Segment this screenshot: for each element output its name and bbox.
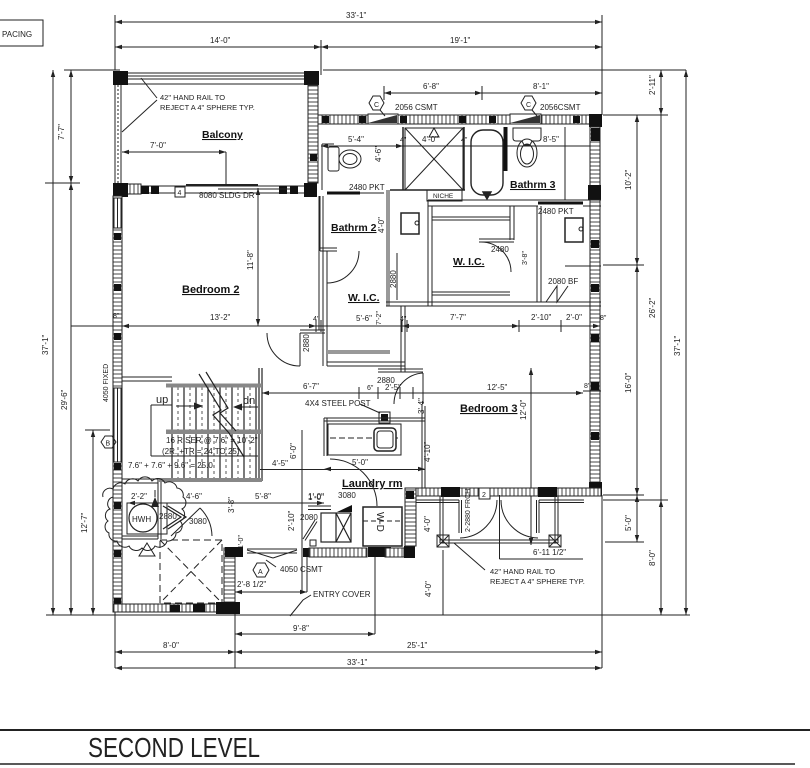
svg-text:SECOND LEVEL: SECOND LEVEL	[88, 732, 260, 763]
svg-text:8'-5": 8'-5"	[543, 135, 559, 144]
svg-text:8": 8"	[113, 313, 120, 320]
svg-text:8080 SLDG DR: 8080 SLDG DR	[199, 191, 255, 200]
svg-text:4: 4	[178, 190, 182, 197]
svg-text:33'-1": 33'-1"	[347, 658, 368, 667]
svg-text:4'-10": 4'-10"	[423, 441, 432, 462]
svg-text:37'-1": 37'-1"	[41, 334, 50, 355]
svg-text:8'-0": 8'-0"	[163, 641, 179, 650]
svg-text:Bedroom 3: Bedroom 3	[460, 403, 517, 415]
svg-text:Bedroom 2: Bedroom 2	[182, 284, 239, 296]
svg-text:7'-0": 7'-0"	[150, 141, 166, 150]
svg-text:Balcony: Balcony	[202, 129, 243, 141]
svg-text:8'-1": 8'-1"	[533, 82, 549, 91]
svg-text:8": 8"	[600, 315, 607, 322]
svg-text:2'-2": 2'-2"	[131, 492, 147, 501]
svg-text:6'-7": 6'-7"	[303, 382, 319, 391]
svg-text:5'-6": 5'-6"	[356, 314, 372, 323]
svg-text:8": 8"	[584, 383, 591, 390]
svg-text:4'-0": 4'-0"	[424, 581, 433, 597]
svg-text:5'-0": 5'-0"	[624, 515, 633, 531]
svg-text:PACING: PACING	[2, 30, 32, 39]
svg-text:3080: 3080	[338, 491, 356, 500]
svg-text:HWH: HWH	[132, 515, 151, 524]
svg-text:4050 CSMT: 4050 CSMT	[280, 565, 323, 574]
svg-text:A: A	[258, 569, 263, 576]
svg-text:C: C	[526, 102, 531, 109]
svg-text:29'-6": 29'-6"	[60, 389, 69, 410]
svg-text:12'-5": 12'-5"	[487, 383, 508, 392]
svg-text:8'-0": 8'-0"	[648, 550, 657, 566]
svg-text:19'-1": 19'-1"	[450, 36, 471, 45]
svg-text:2080 BF: 2080 BF	[548, 277, 578, 286]
svg-text:4'-0": 4'-0"	[422, 135, 438, 144]
svg-text:2'-11": 2'-11"	[648, 75, 657, 95]
svg-text:B: B	[106, 441, 111, 448]
svg-text:4'-5": 4'-5"	[272, 459, 288, 468]
svg-text:W-D: W-D	[374, 512, 385, 532]
svg-text:6": 6"	[367, 385, 374, 392]
svg-text:2: 2	[482, 492, 486, 499]
svg-text:16 RISER @ 7.6" = 10'-2": 16 RISER @ 7.6" = 10'-2"	[166, 436, 258, 445]
svg-text:4'-0": 4'-0"	[377, 217, 386, 233]
svg-text:7'-7": 7'-7"	[450, 313, 466, 322]
svg-text:REJECT A 4" SPHERE TYP.: REJECT A 4" SPHERE TYP.	[490, 577, 585, 586]
svg-text:4'-0": 4'-0"	[423, 516, 432, 532]
svg-text:3'-8": 3'-8"	[522, 251, 529, 265]
svg-text:1'-0": 1'-0"	[238, 535, 245, 549]
svg-text:4'-6": 4'-6"	[186, 492, 202, 501]
svg-text:16'-0": 16'-0"	[624, 372, 633, 393]
svg-text:42" HAND RAIL TO: 42" HAND RAIL TO	[490, 567, 555, 576]
svg-text:4X4 STEEL POST: 4X4 STEEL POST	[305, 399, 371, 408]
svg-text:7'-2": 7'-2"	[376, 311, 383, 325]
svg-text:11'-8": 11'-8"	[246, 250, 255, 270]
svg-text:9'-8": 9'-8"	[293, 624, 309, 633]
svg-text:42" HAND RAIL TO: 42" HAND RAIL TO	[160, 93, 225, 102]
svg-text:2480: 2480	[491, 245, 509, 254]
svg-text:7'-7": 7'-7"	[57, 124, 66, 140]
svg-text:(2R. +TR = 24 TO 25): (2R. +TR = 24 TO 25)	[162, 447, 240, 456]
svg-text:5'-8": 5'-8"	[255, 492, 271, 501]
svg-text:2056 CSMT: 2056 CSMT	[395, 103, 438, 112]
svg-text:2'-0": 2'-0"	[566, 313, 582, 322]
svg-text:REJECT A 4" SPHERE TYP.: REJECT A 4" SPHERE TYP.	[160, 103, 255, 112]
svg-text:6'-8": 6'-8"	[423, 82, 439, 91]
svg-text:4050 FIXED: 4050 FIXED	[103, 364, 110, 402]
svg-text:NICHE: NICHE	[433, 193, 454, 200]
svg-text:4'-6": 4'-6"	[374, 146, 383, 162]
svg-text:W. I.C.: W. I.C.	[453, 256, 485, 268]
svg-text:2880: 2880	[302, 334, 311, 352]
svg-text:14'-0": 14'-0"	[210, 36, 231, 45]
svg-text:25'-1": 25'-1"	[407, 641, 428, 650]
svg-text:Laundry rm: Laundry rm	[342, 478, 403, 490]
svg-text:12'-0": 12'-0"	[519, 399, 528, 420]
svg-text:2056CSMT: 2056CSMT	[540, 103, 581, 112]
svg-text:13'-2": 13'-2"	[210, 313, 231, 322]
svg-text:5'-4": 5'-4"	[348, 135, 364, 144]
svg-text:6'-11 1/2": 6'-11 1/2"	[533, 548, 566, 557]
svg-text:2480 PKT: 2480 PKT	[538, 207, 574, 216]
svg-text:3080: 3080	[189, 517, 207, 526]
svg-text:W. I.C.: W. I.C.	[348, 292, 380, 304]
svg-text:2480 PKT: 2480 PKT	[349, 183, 385, 192]
svg-text:3'-8": 3'-8"	[227, 497, 236, 513]
svg-text:2'-10": 2'-10"	[287, 510, 296, 531]
svg-text:26'-2": 26'-2"	[648, 297, 657, 318]
svg-text:dn: dn	[243, 395, 255, 407]
svg-text:37'-1": 37'-1"	[673, 335, 682, 356]
svg-text:1'-0": 1'-0"	[308, 492, 324, 501]
svg-text:2'-10": 2'-10"	[531, 313, 552, 322]
svg-text:up: up	[156, 394, 168, 406]
svg-text:ENTRY COVER: ENTRY COVER	[313, 590, 371, 599]
svg-text:Bathrm 3: Bathrm 3	[510, 179, 556, 191]
svg-text:2-2880 FRCH: 2-2880 FRCH	[465, 489, 472, 532]
svg-text:2080: 2080	[300, 513, 318, 522]
svg-text:7.6" + 7.6" + 9.6" = 25.0: 7.6" + 7.6" + 9.6" = 25.0	[128, 461, 213, 470]
svg-text:33'-1": 33'-1"	[346, 11, 367, 20]
svg-text:10'-2": 10'-2"	[624, 169, 633, 190]
svg-text:12'-7": 12'-7"	[80, 512, 89, 533]
svg-text:C: C	[374, 102, 379, 109]
svg-text:2'-8 1/2": 2'-8 1/2"	[237, 580, 266, 589]
svg-text:6'-0": 6'-0"	[289, 443, 298, 459]
svg-text:Bathrm 2: Bathrm 2	[331, 222, 377, 234]
